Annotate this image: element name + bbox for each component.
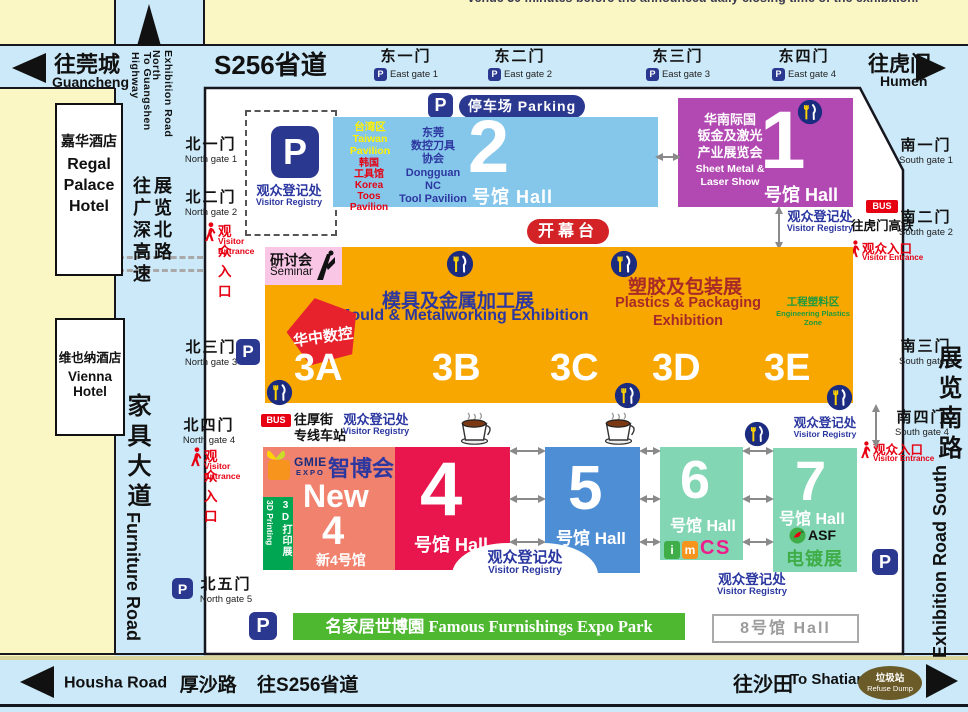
- parking-icon: P: [488, 68, 501, 81]
- dining-icon: [266, 379, 293, 406]
- closing-time-note: venue 30 minutes before the announced da…: [432, 0, 954, 5]
- gate-label-en: North gate 3: [183, 358, 239, 368]
- gate-label-en: North gate 5: [196, 595, 256, 605]
- hall-4-number: 4: [420, 452, 462, 528]
- refuse-zh: 垃圾站: [858, 670, 922, 684]
- connector-arrow: [641, 498, 659, 500]
- visitor-registry-label: 观众登记处 Visitor Registry: [786, 417, 864, 439]
- registry-zh: 观众登记处: [775, 210, 865, 224]
- hall-6-number: 6: [680, 453, 710, 507]
- north-gate-2: 北二门 North gate 2: [183, 190, 239, 218]
- asf-chili-icon: [789, 527, 806, 544]
- parking-icon: P: [646, 68, 659, 81]
- refuse-dump-badge: 垃圾站 Refuse Dump: [858, 666, 922, 700]
- walking-person-icon: [860, 441, 872, 459]
- east-gate-2: 东二门 P East gate 2: [475, 49, 565, 81]
- seminar-label-en: Seminar: [270, 266, 313, 278]
- hall-2-number: 2: [468, 110, 509, 184]
- dongguan-nc-tool-pavilion-label: 东莞 数控刀具 协会 Dongguan NC Tool Pavilion: [398, 127, 468, 206]
- dining-icon: [446, 250, 474, 278]
- hall-1-suffix: 号馆 Hall: [764, 181, 838, 207]
- gate-label-zh: 南三门: [884, 339, 968, 354]
- new4-number: 4: [322, 511, 344, 551]
- parking-icon: P: [249, 612, 277, 640]
- gate-label-zh: 北三门: [183, 340, 239, 355]
- connector-arrow: [511, 541, 544, 543]
- connector-arrow: [744, 541, 772, 543]
- connector-arrow: [657, 156, 679, 158]
- gate-label-en: East gate 1: [390, 70, 438, 80]
- gate-label-zh: 北四门: [181, 418, 237, 433]
- gate-label-zh: 北一门: [183, 137, 239, 152]
- registry-en: Visitor Registry: [786, 430, 864, 439]
- walking-person-icon: [204, 222, 217, 242]
- refuse-en: Refuse Dump: [858, 684, 922, 693]
- mould-exhibition-title-en: Mould & Metalworking Exhibition: [337, 307, 589, 325]
- south-gate-3: 南三门 South gate 3: [884, 339, 968, 367]
- gate-label-zh: 东二门: [475, 49, 565, 64]
- humen-arrow-icon: [916, 54, 946, 82]
- housha-en: Housha Road: [64, 675, 167, 692]
- bus-badge: BUS: [866, 200, 898, 213]
- bus-badge: BUS: [261, 414, 291, 427]
- parking-icon: P: [172, 578, 193, 599]
- hall-6-suffix: 号馆 Hall: [670, 512, 736, 536]
- gate-label-en: North gate 1: [183, 155, 239, 165]
- coffee-icon: [456, 412, 498, 446]
- dining-icon: [610, 250, 638, 278]
- taiwan-pavilion-label: 台湾区 Taiwan Pavilion: [344, 121, 396, 157]
- visitor-registry-label: 观众登记处 Visitor Registry: [332, 413, 420, 436]
- connector-arrow: [641, 450, 659, 452]
- korea-tools-pavilion-label: 韩国 工具馆 Korea Toos Pavilion: [340, 158, 398, 213]
- eng-plastics-zh: 工程塑料区: [772, 294, 854, 309]
- connector-arrow: [511, 450, 544, 452]
- to-guangshen-highway-label: To Guangshen Highway: [129, 52, 153, 177]
- parking-icon: P: [772, 68, 785, 81]
- registry-en: Visitor Registry: [245, 198, 333, 207]
- north-arrow-icon: [137, 4, 161, 46]
- gate-label-en: South gate 3: [884, 357, 968, 367]
- hall-7-suffix: 号馆 Hall: [779, 505, 845, 529]
- famous-furnishings-expo-park-banner: 名家居世博園 Famous Furnishings Expo Park: [293, 613, 685, 640]
- connector-arrow: [744, 498, 772, 500]
- furniture-road-label-en: Furniture Road: [122, 512, 143, 660]
- hotel-name-zh: 嘉华酒店: [57, 131, 121, 151]
- visitor-registry-label: 观众登记处 Visitor Registry: [470, 550, 580, 576]
- registry-zh: 观众登记处: [710, 573, 794, 587]
- connector-arrow: [875, 406, 877, 446]
- plastics-title-en: Plastics & Packaging Exhibition: [613, 294, 763, 330]
- exhibition-road-south-label-en: Exhibition Road South: [930, 458, 951, 658]
- gate-label-zh: 东一门: [361, 49, 451, 64]
- hall-8-box: 8号馆 Hall: [712, 614, 859, 643]
- to-guangshen-label-zh: 往广深高速: [128, 176, 154, 286]
- registry-zh: 观众登记处: [245, 184, 333, 198]
- s256-road-label: S256省道: [214, 45, 327, 82]
- connector-arrow: [778, 208, 780, 248]
- dining-icon: [797, 99, 823, 125]
- dining-icon: [826, 384, 853, 411]
- shatian-arrow-icon: [926, 664, 958, 698]
- connector-arrow: [641, 541, 659, 543]
- gate-label-zh: 南四门: [880, 410, 964, 425]
- shatian-label-zh: 往沙田: [733, 668, 793, 697]
- housha-s256: 往S256省道: [257, 675, 358, 696]
- gate-label-zh: 北二门: [183, 190, 239, 205]
- gate-label-en: North gate 2: [183, 208, 239, 218]
- hall-3b-label: 3B: [432, 349, 481, 387]
- north-gate-1: 北一门 North gate 1: [183, 137, 239, 165]
- vienna-hotel: 维也纳酒店 Vienna Hotel: [55, 318, 125, 436]
- gate-label-zh: 东三门: [633, 49, 723, 64]
- coffee-icon: [600, 412, 642, 446]
- asf-label: ASF: [808, 527, 836, 543]
- gmie-logo-text: GMIE: [294, 455, 327, 469]
- exhibition-venue-map: venue 30 minutes before the announced da…: [0, 0, 968, 712]
- hall-5-number: 5: [568, 458, 602, 520]
- gate-label-en: South gate 1: [884, 156, 968, 166]
- registry-zh: 观众登记处: [470, 550, 580, 566]
- regal-palace-hotel: 嘉华酒店 Regal Palace Hotel: [55, 103, 123, 276]
- parking-icon: P: [236, 339, 260, 365]
- hall-3c-label: 3C: [550, 349, 599, 387]
- guancheng-arrow-icon: [12, 53, 46, 83]
- parking-icon: P: [271, 126, 319, 178]
- connector-arrow: [511, 498, 544, 500]
- registry-en: Visitor Registry: [710, 587, 794, 597]
- hotel-name-zh: 维也纳酒店: [57, 347, 123, 366]
- east-gate-4: 东四门 P East gate 4: [759, 49, 849, 81]
- 3d-printing-strip: 3D Printing 3D打印展: [263, 497, 293, 570]
- housha-road-label: Housha Road 厚沙路 往S256省道: [64, 670, 358, 697]
- hall-3a-label: 3A: [294, 349, 343, 387]
- hotel-name-en: Regal Palace Hotel: [57, 155, 121, 217]
- exhibition-road-north-label: Exhibition Road North: [150, 50, 174, 170]
- housha-zh: 厚沙路: [180, 675, 237, 696]
- hall6-logo-tile: m: [682, 541, 698, 559]
- electroplating-show-label: 电镀展: [786, 545, 843, 571]
- new4-sub-label: 新4号馆: [316, 550, 366, 570]
- gate-label-en: East gate 4: [788, 70, 836, 80]
- registry-zh: 观众登记处: [332, 413, 420, 427]
- hall6-logo-letter: C: [700, 537, 714, 560]
- hall-2-suffix: 号馆 Hall: [472, 183, 553, 209]
- entrance-label-zh: 观众入口: [204, 445, 218, 525]
- entrance-label-en: Visitor Entrance: [873, 454, 934, 463]
- hall-7-number: 7: [795, 453, 826, 509]
- parking-icon: P: [428, 93, 453, 118]
- 3d-printing-zh: 3D打印展: [278, 500, 293, 557]
- eng-plastics-en: Engineering Plastics Zone: [772, 309, 854, 327]
- dining-icon: [614, 382, 641, 409]
- entrance-label-en: Visitor Entrance: [204, 461, 240, 481]
- entrance-label-zh: 观众入口: [218, 220, 232, 300]
- gate-label-zh: 南一门: [884, 138, 968, 153]
- gate-label-en: East gate 2: [504, 70, 552, 80]
- guancheng-label-en: Guancheng: [52, 74, 129, 90]
- north-gate-3: 北三门 North gate 3: [183, 340, 239, 368]
- housha-arrow-icon: [20, 666, 54, 698]
- expo-logo-text: EXPO: [296, 468, 325, 477]
- north-gate-4: 北四门 North gate 4: [181, 418, 237, 446]
- south-gate-1: 南一门 South gate 1: [884, 138, 968, 166]
- visitor-registry-label: 观众登记处 Visitor Registry: [245, 184, 333, 207]
- gate-label-en: South gate 4: [880, 428, 964, 438]
- entrance-label-en: Visitor Entrance: [862, 253, 923, 262]
- seminar-speaker-icon: [312, 248, 338, 284]
- opening-stage-badge: 开幕台: [527, 219, 609, 244]
- registry-en: Visitor Registry: [470, 566, 580, 577]
- hall-3d-label: 3D: [652, 349, 701, 387]
- parking-icon: P: [872, 549, 898, 575]
- shatian-label-en: To Shatian: [790, 671, 866, 688]
- parking-icon: P: [374, 68, 387, 81]
- gmie-expo-logo: [268, 460, 290, 480]
- gate-label-zh: 北五门: [196, 577, 256, 592]
- 3d-printing-en: 3D Printing: [265, 500, 275, 568]
- gate-label-en: East gate 3: [662, 70, 710, 80]
- visitor-registry-label: 观众登记处 Visitor Registry: [775, 210, 865, 233]
- registry-en: Visitor Registry: [775, 224, 865, 233]
- entrance-label-en: Visitor Entrance: [218, 236, 254, 256]
- south-gate-4: 南四门 South gate 4: [880, 410, 964, 438]
- hall6-logo-tile: i: [664, 541, 680, 559]
- north-gate-5: 北五门 North gate 5: [196, 577, 256, 605]
- visitor-registry-label: 观众登记处 Visitor Registry: [710, 573, 794, 597]
- connector-arrow: [744, 450, 772, 452]
- engineering-plastics-zone: 工程塑料区 Engineering Plastics Zone: [772, 294, 854, 327]
- registry-en: Visitor Registry: [332, 427, 420, 436]
- walking-person-icon: [190, 447, 203, 467]
- east-gate-1: 东一门 P East gate 1: [361, 49, 451, 81]
- new4-new-label: New: [303, 480, 369, 512]
- hotel-name-en: Vienna Hotel: [57, 369, 123, 399]
- gate-label-zh: 东四门: [759, 49, 849, 64]
- hall6-logo-letter: S: [716, 537, 729, 560]
- hall-3e-label: 3E: [764, 349, 810, 387]
- dining-icon: [744, 421, 770, 447]
- east-gate-3: 东三门 P East gate 3: [633, 49, 723, 81]
